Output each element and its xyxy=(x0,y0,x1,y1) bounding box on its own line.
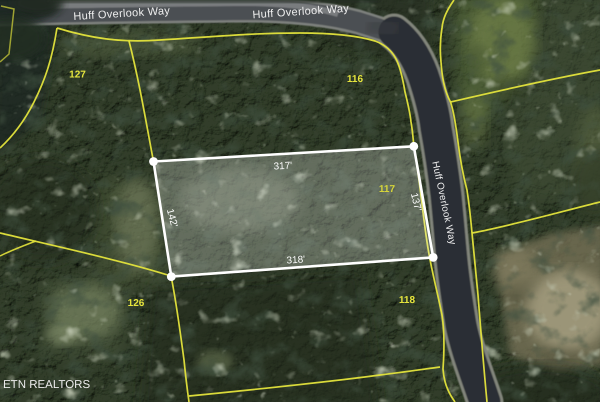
svg-text:116: 116 xyxy=(347,74,364,85)
svg-text:318': 318' xyxy=(286,254,305,266)
svg-text:317': 317' xyxy=(273,161,292,173)
svg-text:ETN REALTORS: ETN REALTORS xyxy=(3,379,90,391)
svg-text:127: 127 xyxy=(69,70,86,81)
svg-text:117: 117 xyxy=(379,184,396,195)
svg-text:118: 118 xyxy=(399,295,416,306)
svg-text:126: 126 xyxy=(128,298,145,309)
